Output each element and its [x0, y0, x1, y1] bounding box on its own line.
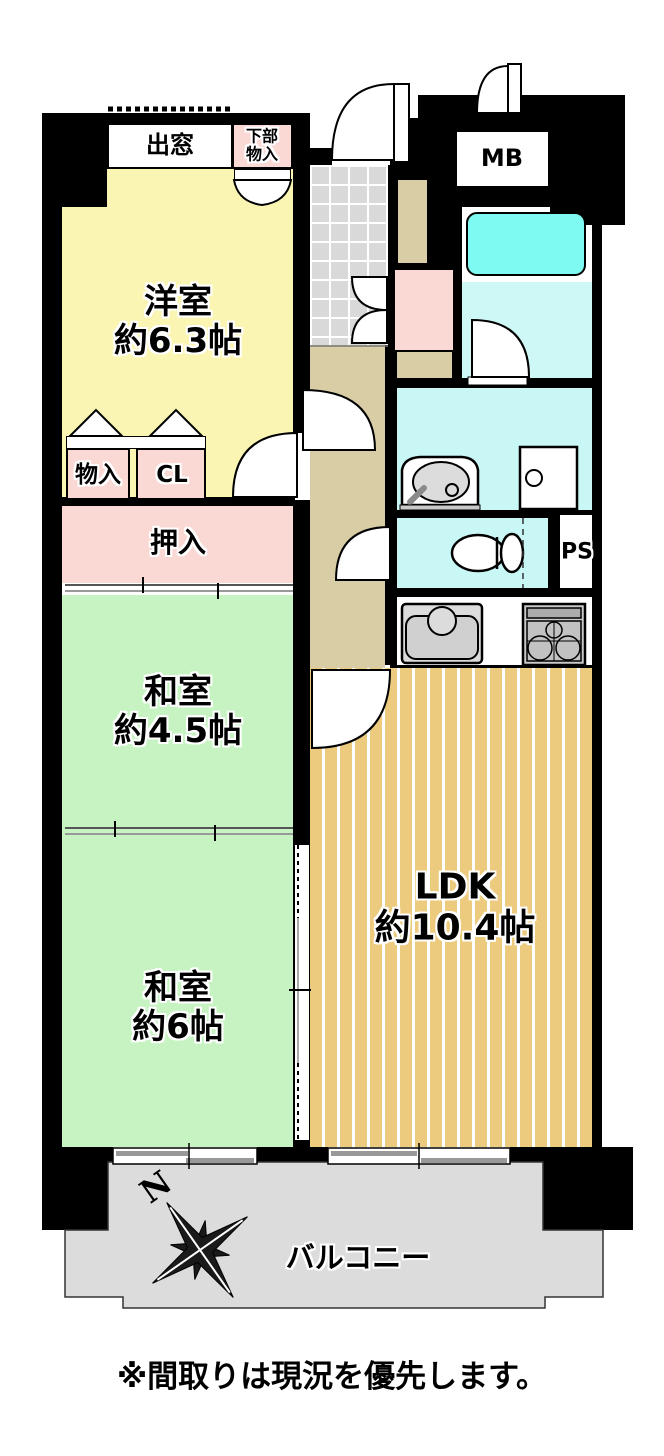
washroom-door-icon [303, 390, 375, 450]
floor-plan: N 出窓 下部 物入 MB 洋室 約6.3帖 物入 CL 押入 和室 約4.5帖… [0, 0, 664, 1456]
plan-overlay: N [0, 0, 664, 1456]
pipe-space-label: PS [561, 539, 593, 564]
note-text: ※間取りは現況を優先します。 [117, 1360, 547, 1396]
monoire-label: 物入 [75, 462, 121, 488]
ldk-door-icon [312, 670, 390, 748]
entry-door-icon [332, 84, 409, 162]
lower-storage-label: 下部 物入 [246, 128, 278, 165]
bay-window-label: 出窓 [146, 132, 194, 160]
meter-box-label: MB [481, 145, 523, 173]
folding-door-icon [70, 410, 122, 436]
sliding-partition-icon [65, 821, 293, 841]
japanese-room-6-label: 和室 約6帖 [132, 969, 224, 1047]
balcony-label: バルコニー [286, 1241, 430, 1274]
folding-door-icon [150, 410, 202, 436]
hall-closet-doors-icon [352, 277, 387, 310]
oshiire-label: 押入 [150, 527, 206, 559]
ldk-label: LDK 約10.4帖 [375, 867, 536, 950]
western-room-label: 洋室 約6.3帖 [114, 283, 242, 361]
cl-label: CL [156, 462, 188, 488]
stove-icon [523, 604, 585, 665]
bathtub-icon [467, 213, 585, 275]
japanese-room-4-5-label: 和室 約4.5帖 [114, 673, 242, 751]
meter-box-door-icon [477, 64, 521, 113]
western-room-door-icon [233, 433, 297, 497]
toilet-door-icon [336, 527, 390, 580]
hall-closet-doors-icon [352, 310, 387, 343]
washbasin-icon [400, 457, 480, 510]
washing-machine-icon [520, 447, 577, 509]
sliding-opening-icon [289, 845, 311, 1140]
toilet-icon [452, 518, 523, 588]
sliding-door-icon [65, 577, 293, 599]
sink-icon [402, 604, 482, 663]
bathroom-door-icon [468, 320, 529, 385]
lower-storage-doors-icon [234, 180, 291, 205]
